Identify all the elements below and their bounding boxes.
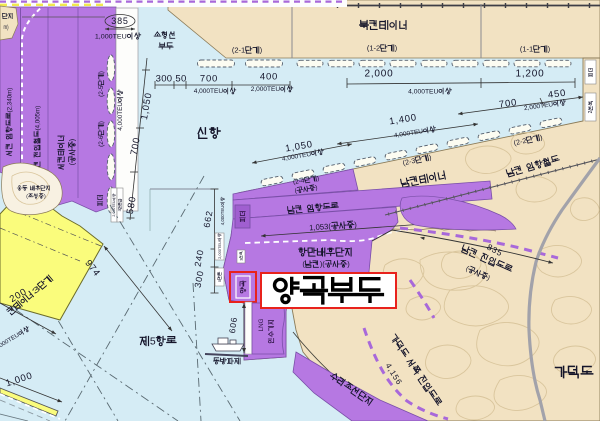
svg-text:): ): [67, 139, 76, 141]
svg-text:2,000TEU: 2,000TEU: [217, 241, 222, 259]
svg-text:): ): [98, 121, 105, 123]
svg-text:3: 3: [239, 259, 243, 261]
svg-text:3: 3: [118, 209, 122, 211]
svg-text:LNG: LNG: [258, 319, 265, 332]
svg-text:50: 50: [175, 73, 186, 84]
svg-text:): ): [548, 45, 550, 54]
svg-text:4,000TEU: 4,000TEU: [408, 88, 439, 95]
svg-text:1,200: 1,200: [515, 69, 544, 80]
svg-text:m): m): [4, 25, 9, 31]
svg-text:4,000TEU: 4,000TEU: [117, 102, 124, 131]
svg-text:5: 5: [150, 336, 156, 348]
svg-text:300: 300: [156, 73, 173, 84]
svg-text:4,000TEU: 4,000TEU: [194, 88, 224, 95]
svg-text:4,000TEU: 4,000TEU: [220, 206, 225, 226]
svg-text:(1-2: (1-2: [367, 44, 380, 53]
svg-text:400: 400: [260, 71, 278, 82]
svg-text:(2-1: (2-1: [232, 46, 245, 55]
svg-text:): ): [395, 44, 397, 53]
svg-text:385: 385: [111, 16, 128, 26]
svg-text:(1-1: (1-1: [520, 45, 533, 54]
svg-text:2,000TEU: 2,000TEU: [112, 200, 116, 216]
svg-text:)(: )(: [320, 260, 325, 269]
svg-text:(2,340m): (2,340m): [6, 88, 13, 113]
svg-text:): ): [44, 194, 46, 200]
svg-text:2,000TEU: 2,000TEU: [251, 86, 281, 93]
svg-text:(2-5: (2-5: [98, 85, 105, 97]
svg-text:(4,005m): (4,005m): [34, 106, 41, 131]
svg-text:2,000: 2,000: [364, 69, 393, 80]
svg-text:(2-6: (2-6: [98, 135, 105, 147]
svg-text:1,000TEU: 1,000TEU: [95, 33, 127, 40]
svg-text:2: 2: [588, 110, 594, 113]
svg-text:): ): [260, 46, 262, 55]
svg-text:700: 700: [200, 73, 218, 84]
svg-text:(: (: [26, 194, 28, 200]
svg-text:): ): [98, 71, 105, 73]
